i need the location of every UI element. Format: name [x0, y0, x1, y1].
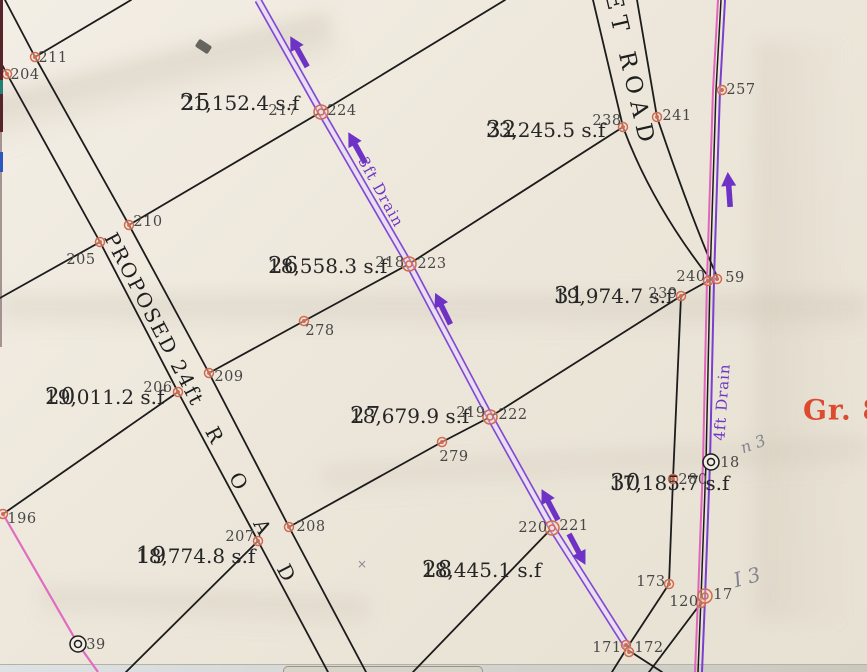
pencil-note: I 3: [731, 562, 763, 592]
survey-point-label: 240: [676, 269, 705, 285]
scan-edge-blue-mark: [0, 152, 3, 172]
point-label-layer: 2042112102052062091962072082782792172242…: [0, 0, 867, 672]
survey-point-label: 222: [498, 407, 527, 423]
survey-point-label: 18: [720, 455, 739, 471]
survey-point-label: 208: [296, 519, 325, 535]
survey-point-label: 217: [268, 103, 297, 119]
survey-point-label: 224: [327, 103, 356, 119]
survey-plat-map: PROPOSED 24ft R O A D ET ROAD 3ft Drain …: [0, 0, 867, 672]
survey-point-label: 210: [133, 214, 162, 230]
survey-point-label: 171: [592, 640, 621, 656]
survey-point-label: 211: [38, 50, 67, 66]
survey-point-label: 280: [678, 472, 707, 488]
survey-point-label: 220: [518, 520, 547, 536]
survey-point-label: 39: [86, 637, 105, 653]
survey-point-label: 120: [669, 594, 698, 610]
survey-point-label: 278: [305, 323, 334, 339]
survey-point-label: 173: [636, 574, 665, 590]
survey-point-label: 59: [725, 270, 744, 286]
survey-point-label: 206: [143, 380, 172, 396]
survey-point-label: 172: [634, 640, 663, 656]
survey-point-label: 257: [726, 82, 755, 98]
survey-point-label: 221: [559, 518, 588, 534]
pencil-note: ×: [357, 557, 367, 571]
survey-point-label: 279: [439, 449, 468, 465]
pencil-note: n 3: [738, 431, 769, 458]
scan-left-edge: [0, 0, 3, 132]
survey-point-label: 223: [417, 256, 446, 272]
scan-edge-teal-mark: [0, 80, 3, 94]
survey-point-label: 204: [10, 67, 39, 83]
survey-point-label: 209: [214, 369, 243, 385]
survey-point-label: 196: [7, 511, 36, 527]
survey-point-label: 241: [662, 108, 691, 124]
survey-point-label: 219: [456, 405, 485, 421]
survey-point-label: 239: [648, 286, 677, 302]
survey-point-label: 205: [66, 252, 95, 268]
survey-point-label: 207: [225, 529, 254, 545]
survey-point-label: 17: [713, 587, 732, 603]
survey-point-label: 218: [375, 255, 404, 271]
survey-point-label: 238: [592, 113, 621, 129]
